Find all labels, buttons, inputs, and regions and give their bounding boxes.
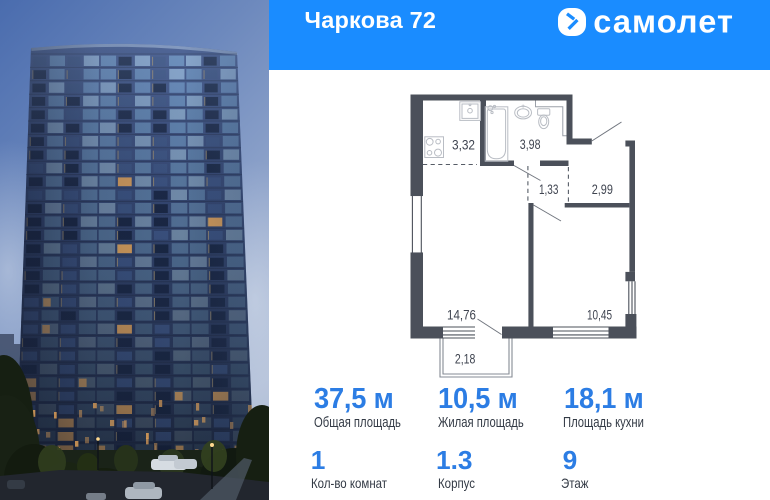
svg-text:1,33: 1,33 [539, 182, 559, 197]
svg-text:самолет: самолет [593, 8, 734, 40]
svg-text:14,76: 14,76 [447, 308, 476, 323]
svg-text:10,45: 10,45 [587, 308, 612, 323]
svg-text:2,99: 2,99 [592, 182, 613, 197]
svg-text:3,98: 3,98 [520, 137, 541, 152]
svg-text:2,18: 2,18 [455, 351, 476, 366]
svg-text:3,32: 3,32 [452, 138, 475, 153]
